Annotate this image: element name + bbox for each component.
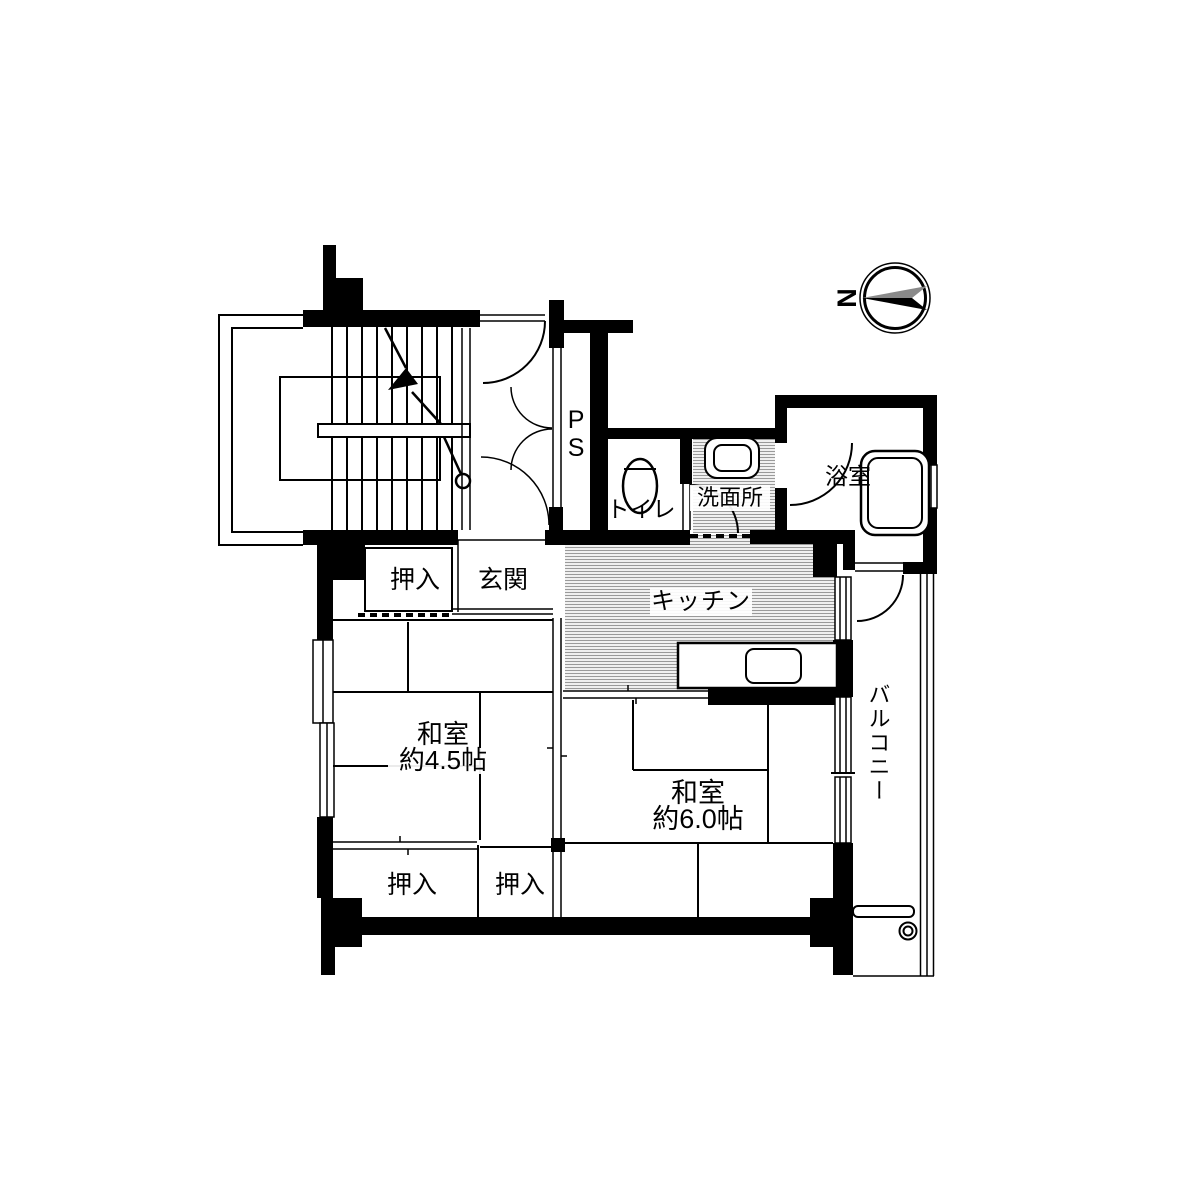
room-label-closet-lower-right: 押入 bbox=[491, 871, 549, 899]
entrance-door-arc bbox=[483, 321, 545, 383]
room-label-washroom: 洗面所 bbox=[690, 485, 770, 511]
stairs bbox=[219, 315, 470, 545]
room-label-closet-lower-left: 押入 bbox=[383, 871, 441, 899]
room-label-entrance: 玄関 bbox=[474, 566, 532, 594]
room-label-bathroom: 浴室 bbox=[820, 462, 876, 490]
stairs-up-arrow bbox=[385, 328, 470, 488]
room-label-closet-upper: 押入 bbox=[386, 566, 444, 594]
balcony-door-arc bbox=[857, 575, 903, 621]
balcony-partition bbox=[853, 906, 914, 917]
room-label-japanese-room-45: 和室 bbox=[383, 722, 503, 748]
kitchen-balcony-window bbox=[835, 577, 851, 640]
floor-plan-drawing bbox=[0, 0, 1200, 1200]
room-size-japanese-room-45: 約4.5帖 bbox=[388, 748, 498, 774]
kitchen-sink bbox=[746, 649, 801, 683]
room-label-balcony: バルコニー bbox=[864, 675, 892, 810]
compass-needle-black bbox=[862, 298, 927, 310]
compass bbox=[860, 263, 930, 333]
room-label-kitchen: キッチン bbox=[650, 588, 752, 616]
floor-plan: PS トイレ 洗面所 浴室 キッチン 玄関 押入 押入 押入 和室 約4.5帖 … bbox=[0, 0, 1200, 1200]
room-size-japanese-room-60: 約6.0帖 bbox=[638, 806, 758, 833]
room-label-ps: PS bbox=[562, 396, 590, 472]
room45-south-slider bbox=[333, 836, 477, 855]
compass-north-label: N bbox=[831, 283, 863, 313]
compass-needle-gray bbox=[862, 286, 927, 298]
room-label-toilet: トイレ bbox=[605, 495, 677, 523]
room6-window-lower bbox=[835, 777, 851, 843]
room6-window-upper bbox=[835, 697, 851, 773]
room-label-japanese-room-60: 和室 bbox=[638, 780, 758, 806]
rooms-divider-slider bbox=[547, 618, 567, 917]
